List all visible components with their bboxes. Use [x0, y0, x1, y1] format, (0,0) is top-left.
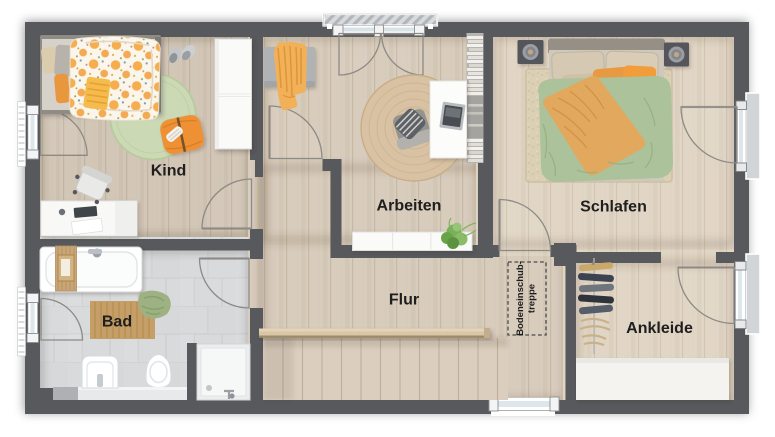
- svg-text:Bodeneinschub-: Bodeneinschub-: [515, 261, 526, 336]
- svg-text:Ankleide: Ankleide: [626, 320, 693, 337]
- svg-text:Kind: Kind: [151, 163, 187, 180]
- svg-text:Flur: Flur: [389, 292, 419, 309]
- svg-text:Arbeiten: Arbeiten: [377, 198, 442, 215]
- svg-text:Bad: Bad: [102, 314, 132, 331]
- svg-text:Schlafen: Schlafen: [580, 199, 647, 216]
- svg-text:treppe: treppe: [527, 284, 538, 313]
